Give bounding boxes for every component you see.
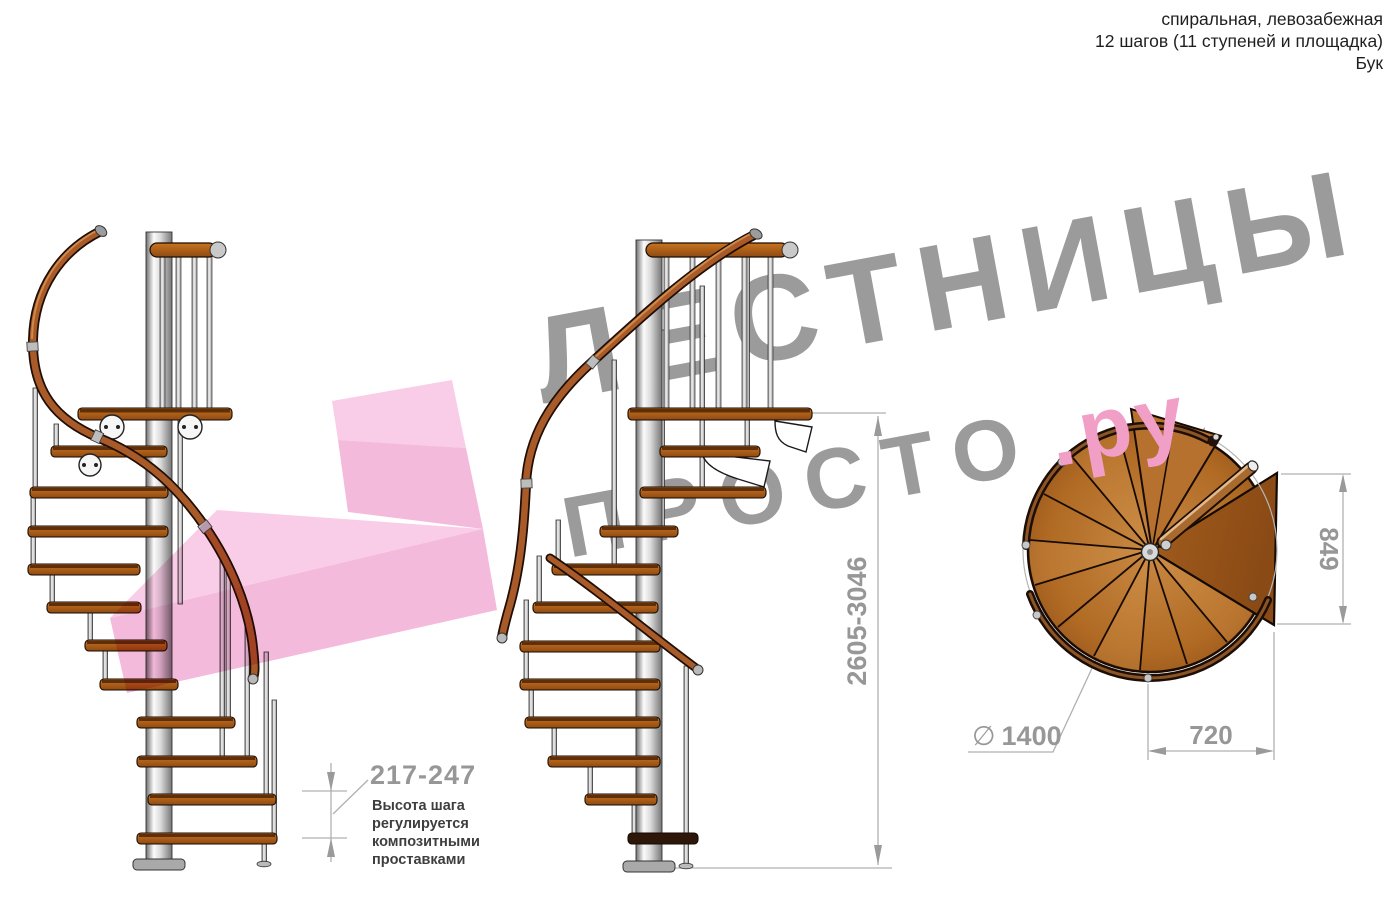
diameter-symbol: ∅ — [972, 721, 996, 751]
title-line-steps: 12 шагов (11 ступеней и площадка) — [1095, 30, 1383, 52]
title-block: спиральная, левозабежная 12 шагов (11 ст… — [1095, 8, 1383, 74]
title-line-material: Бук — [1095, 52, 1383, 74]
drawing-sheet: ЛЕСТНИЦЫ ПРОСТО — [0, 0, 1400, 907]
step-height-note: Высота шага регулируется композитными пр… — [372, 797, 480, 869]
staircase-side-view-b — [497, 227, 812, 872]
dimension-landing-depth: 849 — [1316, 499, 1344, 599]
platform-railing — [150, 242, 226, 409]
dimension-step-height: 217-247 — [370, 760, 476, 791]
pole-middle-view — [636, 240, 662, 864]
dimension-total-height: 2605-3046 — [842, 531, 872, 711]
platform-railing-b — [646, 242, 798, 409]
dimension-landing-width: 720 — [1161, 720, 1261, 751]
dimension-diameter: ∅1400 — [972, 721, 1062, 752]
title-line-type: спиральная, левозабежная — [1095, 8, 1383, 30]
diameter-value: 1400 — [1002, 721, 1062, 751]
steps-middle-view — [520, 408, 812, 844]
watermark-brand-bottom-pink: .ру — [1042, 370, 1196, 480]
